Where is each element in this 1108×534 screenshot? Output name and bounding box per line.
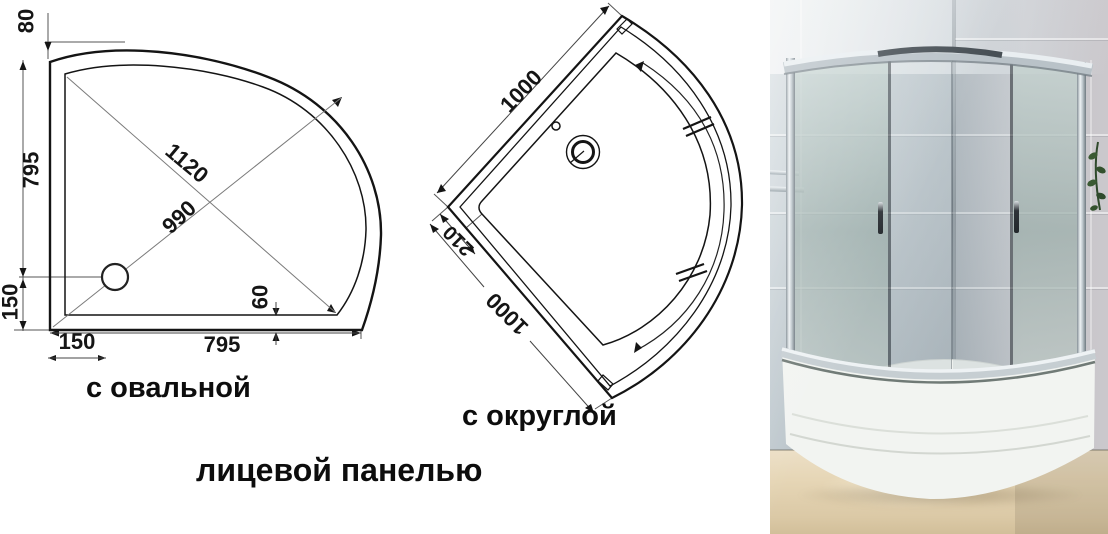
dim-upper-edge: 1000 [495, 65, 547, 118]
product-photo [770, 0, 1108, 534]
dim-bottom-first: 150 [59, 329, 96, 354]
drawing-round-tray: 1000 210 1000 [420, 0, 780, 445]
enclosure-outer-outline [448, 16, 742, 398]
enclosure-inner-outline [460, 27, 731, 386]
caption-round-panel: с округлой [462, 400, 617, 433]
dim-corner-depth: 210 [439, 221, 478, 260]
door-arc-arrows [634, 61, 644, 353]
diagonal-lines [53, 77, 341, 327]
fitting-hole [552, 122, 560, 130]
dim-rim-width: 60 [247, 285, 272, 309]
tray-outer-outline [50, 50, 381, 330]
drain-circle [102, 264, 128, 290]
dim-top-offset: 80 [13, 9, 38, 33]
dim-diagonal-long: 1120 [161, 138, 214, 188]
light-sheen-overlay [770, 0, 1108, 534]
jamb-details [598, 19, 632, 390]
dim-side: 795 [18, 152, 43, 189]
dim-diagonal-short: 990 [157, 195, 201, 238]
door-handle-marks [676, 117, 714, 281]
drawing-oval-tray: 80 795 150 1120 990 60 150 795 [0, 0, 420, 370]
dim-side-lower: 150 [0, 284, 22, 321]
caption-front-panel: лицевой панелью [196, 452, 482, 489]
caption-oval-panel: с овальной [86, 372, 251, 405]
dim-bottom-main: 795 [204, 332, 241, 357]
shower-enclosure-figure: 80 795 150 1120 990 60 150 795 [0, 0, 1108, 534]
